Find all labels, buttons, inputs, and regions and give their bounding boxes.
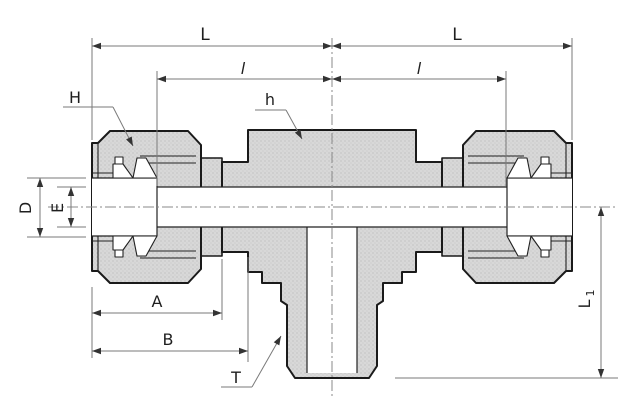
dim-label-L1: L 1 — [575, 290, 597, 309]
dim-label-l-right: l — [417, 59, 422, 78]
dim-label-L-left: L — [200, 25, 210, 45]
branch-tee-drawing: L L l l H h D E A B T L 1 — [0, 0, 629, 412]
dim-label-L1-main: L — [575, 299, 594, 308]
leader-T — [252, 336, 281, 387]
dim-label-E: E — [48, 203, 67, 213]
dim-label-A: A — [152, 292, 163, 311]
dim-label-D: D — [16, 202, 35, 214]
dim-label-B: B — [163, 330, 174, 349]
dim-label-h: h — [265, 90, 275, 109]
dim-label-H: H — [69, 88, 81, 107]
dim-label-l-left: l — [241, 59, 246, 78]
dim-label-L-right: L — [452, 25, 462, 45]
dim-label-T: T — [230, 368, 241, 387]
technical-drawing-canvas: L L l l H h D E A B T L 1 — [0, 0, 629, 412]
dim-label-L1-sub: 1 — [584, 290, 597, 297]
